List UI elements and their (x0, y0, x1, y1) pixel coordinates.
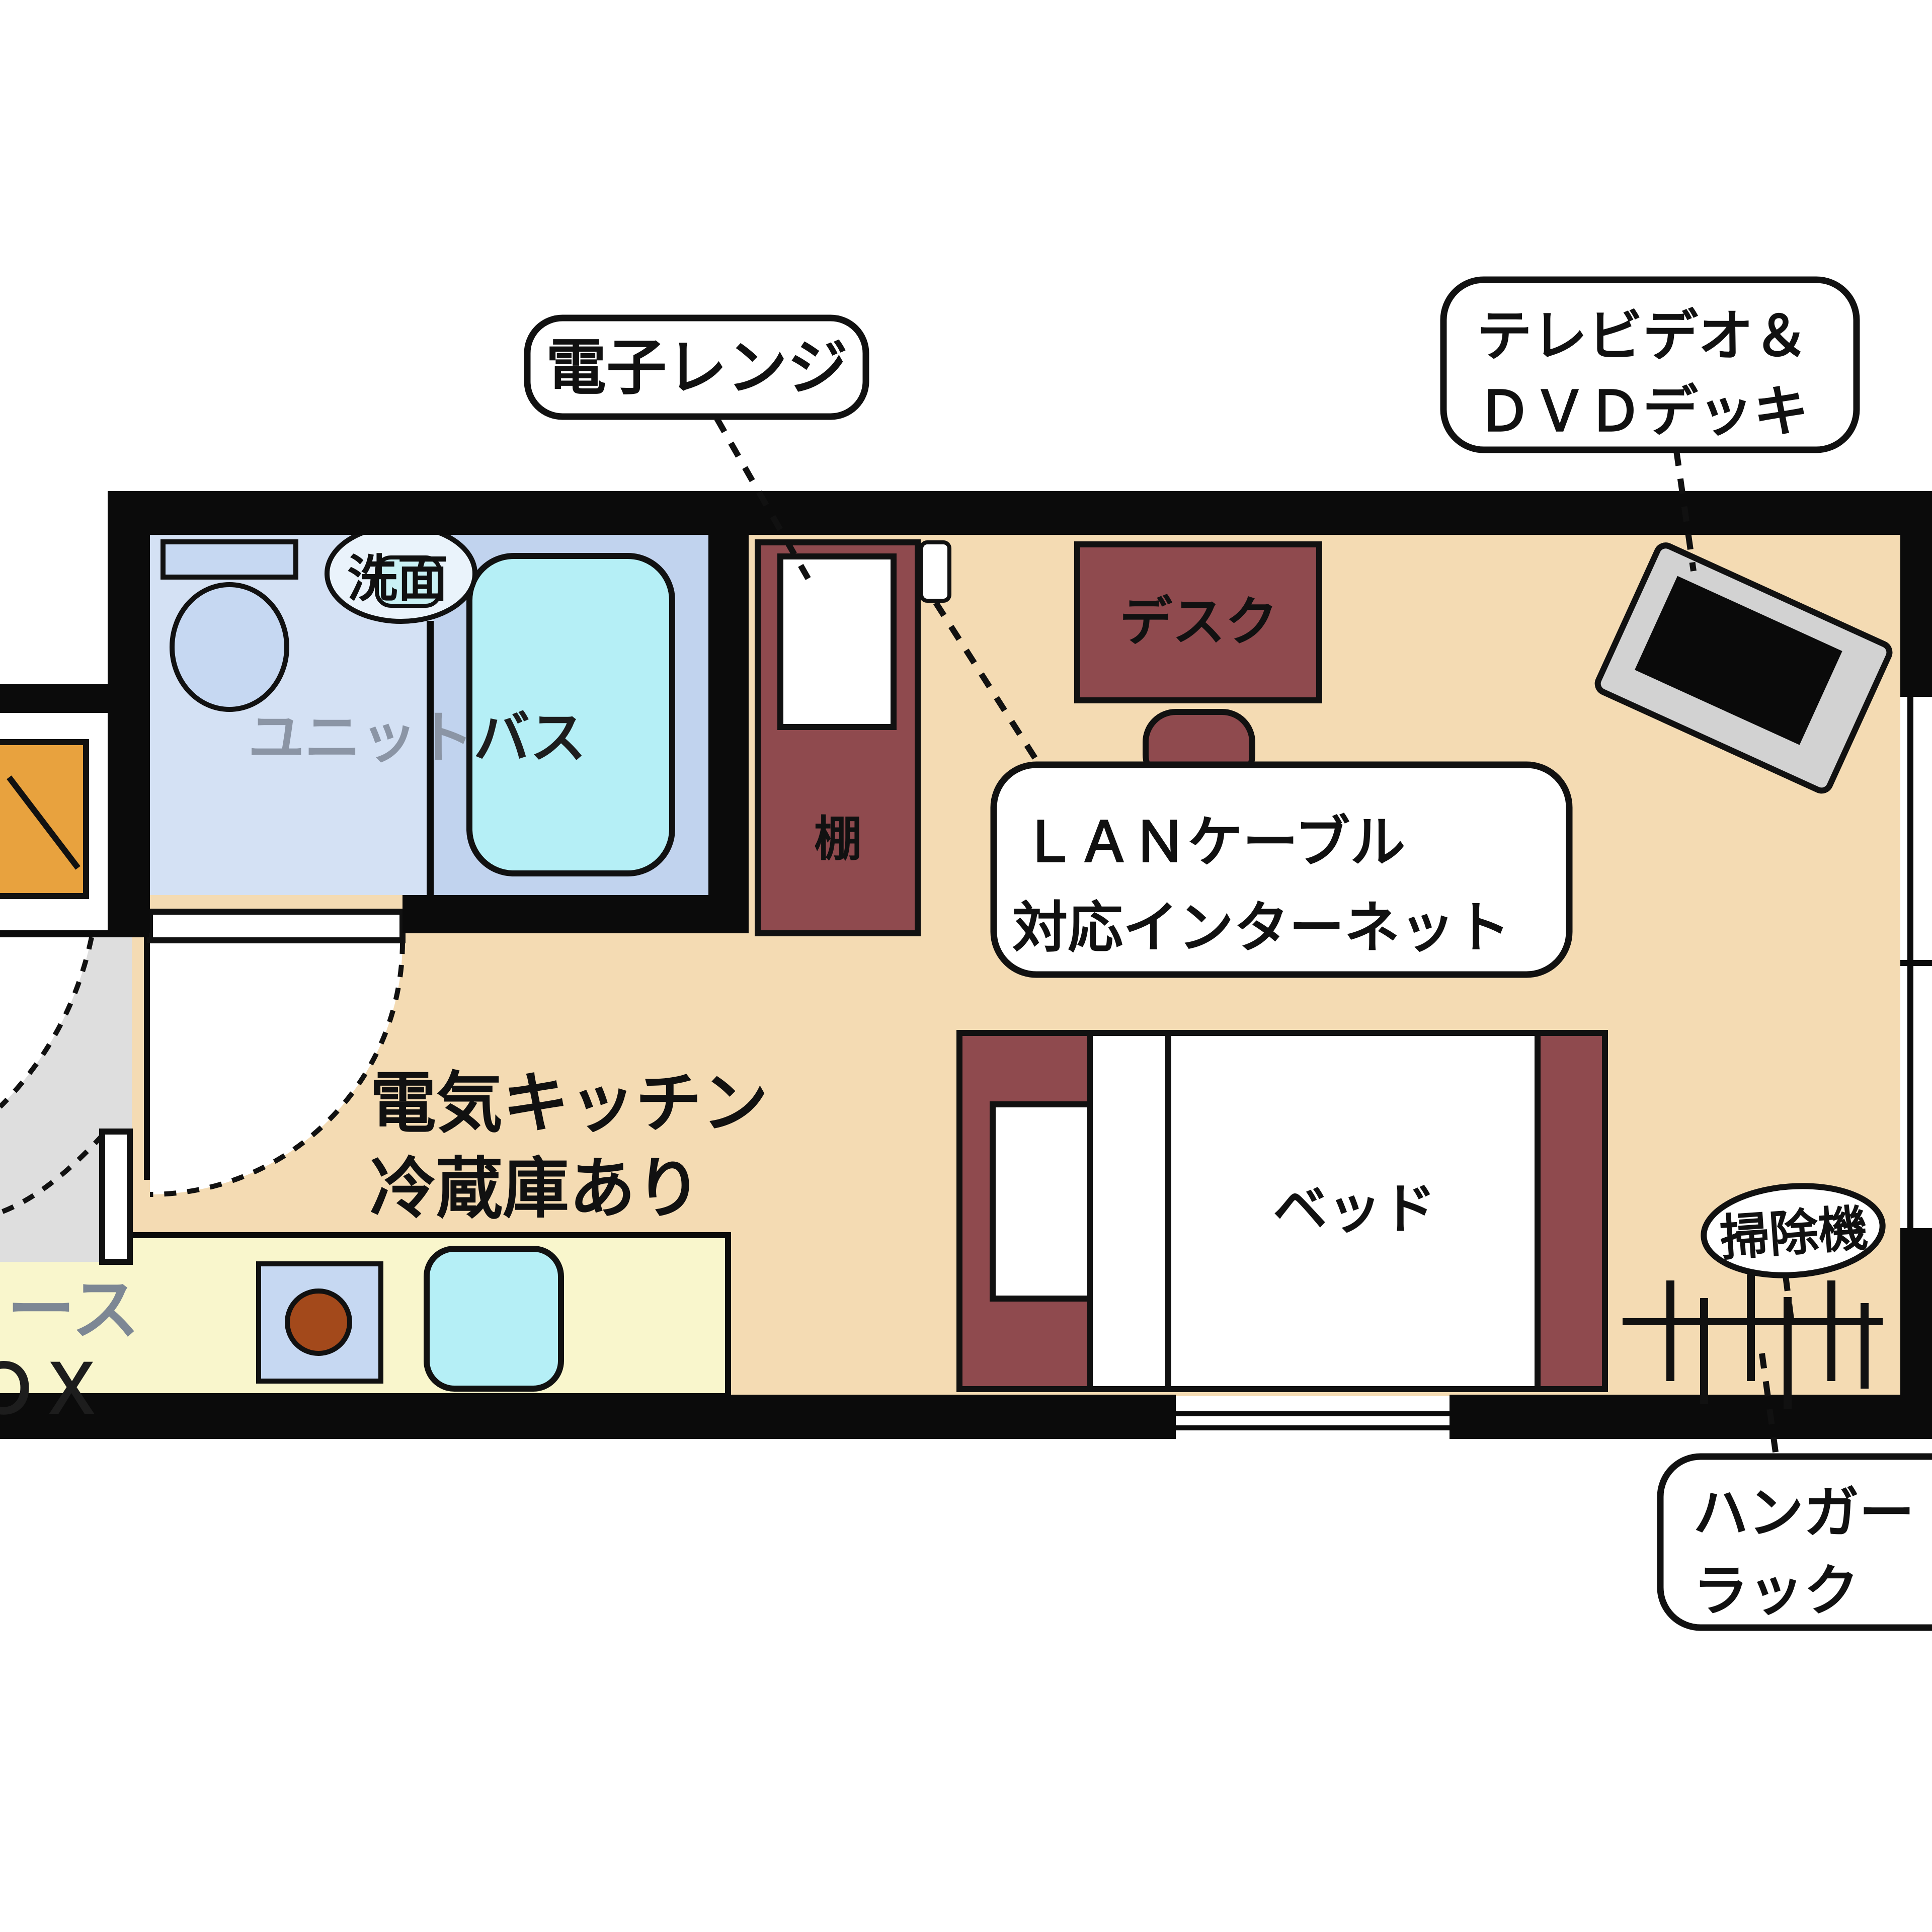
cutoff-text-line1-span: ース (7, 1270, 139, 1349)
wall-top (108, 491, 1932, 535)
toilet-tank (163, 542, 296, 577)
wall-right-bottom (1900, 1228, 1932, 1396)
toilet-bowl (172, 585, 287, 709)
stove-burner (287, 1291, 350, 1353)
bed-footboard (1538, 1033, 1605, 1389)
floor-plan: 洗面 ユニットバス 棚 デスク (0, 0, 1932, 1932)
bathroom-door-panel (150, 912, 403, 940)
cutoff-text-line2: ＯＸ (0, 1350, 106, 1429)
wall-bottom-left (0, 1395, 1176, 1439)
cutoff-text-line1: ース (7, 1270, 139, 1349)
tv-label-line2: ＤＶＤデッキ (1477, 379, 1809, 444)
entry-door-panel (102, 1132, 130, 1262)
wall-bathroom-bottom (403, 895, 749, 933)
unit-bath-label-part2: バス (473, 705, 586, 771)
washbasin-label: 洗面 (347, 549, 448, 608)
lan-label-line2: 対応インターネット (1012, 896, 1510, 960)
callout-tv: テレビデオ＆ ＤＶＤデッキ (1443, 280, 1857, 450)
kitchen-note-line1: 電気キッチン (370, 1065, 768, 1142)
wall-bottom-right (1450, 1395, 1932, 1439)
callout-lan: ＬＡＮケーブル 対応インターネット (994, 765, 1569, 975)
shelf-unit: 棚 (758, 542, 949, 933)
microwave-label: 電子レンジ (546, 333, 848, 403)
lan-outlet (921, 542, 949, 601)
wall-right-top (1900, 491, 1932, 697)
callout-hanger: ハンガー ラック (1660, 1457, 1932, 1628)
bed-pillow (993, 1104, 1090, 1299)
window-right-sash (1900, 960, 1932, 966)
hanger-label-line2: ラック (1693, 1559, 1859, 1623)
unit-bath-label-part1: ユニット (248, 705, 473, 771)
wall-entry-line (0, 930, 149, 937)
window-bottom-line2 (1176, 1425, 1450, 1430)
entry-divider-line (144, 937, 150, 1180)
callout-microwave: 電子レンジ (527, 318, 866, 417)
lan-label-line1: ＬＡＮケーブル (1021, 810, 1405, 874)
unit-bath-label: ユニットバス (248, 705, 586, 771)
kitchen-sink (427, 1249, 561, 1389)
tv-label-line1: テレビデオ＆ (1477, 304, 1809, 368)
hanger-label-line1: ハンガー (1693, 1481, 1914, 1545)
wall-left-stub (0, 684, 116, 713)
desk-label: デスク (1119, 591, 1278, 653)
unit-bathroom: 洗面 ユニットバス (148, 526, 708, 895)
bed-label: ベッド (1273, 1178, 1436, 1241)
window-bottom-line1 (1176, 1411, 1450, 1416)
microwave-on-shelf (780, 556, 894, 727)
bed-unit: ベッド (959, 1033, 1605, 1389)
kitchen-note-line2: 冷蔵庫あり (370, 1150, 702, 1228)
wall-bathroom-right (708, 535, 749, 933)
bed-gap (1090, 1033, 1168, 1389)
shelf-label: 棚 (814, 812, 862, 867)
vacuum-label: 掃除機 (1718, 1200, 1870, 1267)
